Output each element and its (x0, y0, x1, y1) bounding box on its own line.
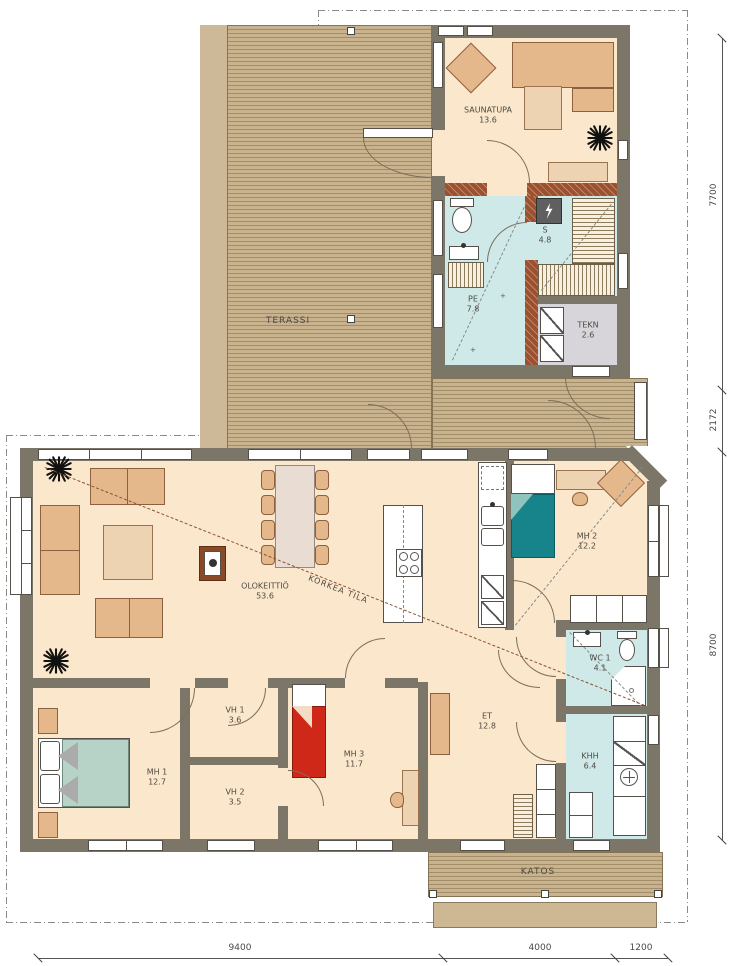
desk-chair (390, 792, 404, 808)
window (438, 26, 464, 36)
sauna-partition-horizontal (445, 183, 617, 196)
sideboard (548, 162, 608, 182)
window (467, 26, 493, 36)
dimension-2172: 2172 (709, 409, 719, 432)
desk-chair (572, 492, 588, 506)
window (433, 42, 443, 88)
door-opening-terrace-1 (367, 449, 410, 460)
floor-drain-icon: + (470, 346, 476, 354)
door-opening-terrace-2 (508, 449, 548, 460)
flue-icon (209, 559, 217, 567)
katos-post (654, 890, 662, 898)
drain-icon (629, 688, 634, 693)
partition-mh3-left (278, 688, 288, 839)
window (433, 274, 443, 328)
bed-pillow (511, 464, 555, 494)
dining-table (275, 465, 315, 568)
terrace-deck-south (432, 378, 648, 450)
partition-vh-divider (190, 757, 278, 765)
dimension-9400: 9400 (229, 943, 252, 953)
sideboard (430, 693, 450, 755)
katos-post (541, 890, 549, 898)
bed-pillow (40, 741, 60, 771)
plot-boundary-left (6, 435, 7, 922)
sink-icon (449, 246, 479, 260)
sauna-tekn-divider (538, 296, 617, 304)
door-opening-terrace-sauna (432, 130, 445, 176)
bed-pillow (292, 684, 326, 708)
room-label-vh2: VH 23.5 (225, 788, 244, 809)
window (421, 449, 468, 460)
floor-plan: + + (0, 0, 730, 966)
wardrobe (570, 595, 647, 623)
sauna-wall-right (617, 25, 630, 378)
window (207, 840, 255, 851)
dining-chair (315, 495, 329, 515)
window (648, 628, 659, 668)
room-label-mh3: MH 311.7 (344, 750, 365, 771)
nightstand (38, 708, 58, 734)
room-label-wc1: WC 14.1 (589, 654, 610, 675)
dining-chair (315, 545, 329, 565)
terrace-deck (200, 25, 432, 450)
terrace-edge-band (200, 25, 228, 450)
door-leaf (363, 128, 433, 138)
room-label-s: S4.8 (539, 226, 552, 247)
dimension-8700: 8700 (709, 634, 719, 657)
window (648, 715, 659, 745)
corner-sofa (512, 42, 614, 88)
toilet-icon (452, 207, 472, 233)
plant-icon (42, 647, 70, 675)
dimension-1200: 1200 (630, 943, 653, 953)
window (648, 505, 659, 577)
window (88, 840, 163, 851)
room-label-khh: KHH6.4 (581, 752, 598, 773)
floor-drain-icon: + (500, 292, 506, 300)
window-sill (659, 505, 669, 577)
door-opening-entrance (460, 840, 505, 851)
desk (402, 770, 419, 826)
door-opening-mh1 (150, 678, 195, 688)
stairs-icon (448, 262, 484, 288)
terrace-screen (634, 382, 647, 440)
corner-sofa-leg (572, 88, 614, 112)
window (433, 200, 443, 256)
door-opening-khh-exterior (573, 840, 610, 851)
toilet-tank-icon (450, 198, 474, 207)
window (318, 840, 393, 851)
room-label-pe: PE7.8 (467, 295, 480, 316)
plot-boundary-top (318, 10, 687, 11)
room-label-olokeittio: OLOKEITTIÖ53.6 (241, 582, 289, 603)
fridge-icon (481, 575, 504, 599)
dining-chair (315, 520, 329, 540)
hvac-unit-icon (540, 307, 564, 334)
window-sill (659, 628, 669, 668)
room-label-katos: KATOS (521, 867, 556, 879)
plot-boundary-right (687, 10, 688, 922)
faucet-icon (461, 243, 466, 248)
sofa (95, 598, 163, 638)
sauna-stove-icon (536, 198, 562, 224)
sofa (40, 505, 80, 595)
door-opening-vh1 (228, 678, 268, 688)
sink-bowl-icon (481, 528, 504, 546)
cooktop-icon (396, 549, 422, 577)
window (618, 140, 628, 160)
door-opening-pe (487, 183, 527, 196)
window (248, 449, 352, 460)
toilet-icon (619, 639, 635, 661)
closet (536, 764, 556, 838)
partition-et-left (418, 682, 428, 839)
dimension-line-bottom (38, 958, 668, 959)
dimension-7700: 7700 (709, 184, 719, 207)
room-label-tekn: TEKN2.6 (577, 321, 598, 342)
door-opening-mh3 (345, 678, 385, 688)
nightstand (38, 812, 58, 838)
dishwasher-icon (481, 466, 504, 490)
door-opening-khh (556, 722, 566, 763)
room-label-et: ET12.8 (478, 712, 496, 733)
dining-chair (261, 520, 275, 540)
window (21, 497, 32, 595)
shoe-rack (513, 794, 533, 838)
coffee-table (524, 86, 562, 130)
freezer-icon (481, 601, 504, 625)
door-opening-vh2 (278, 768, 288, 806)
door-opening-tekn (572, 366, 610, 377)
room-label-terassi: TERASSI (266, 316, 310, 328)
bed-pillow (40, 774, 60, 804)
dining-chair (261, 470, 275, 490)
cabinet (569, 792, 593, 838)
room-label-vh1: VH 13.6 (225, 706, 244, 727)
dining-chair (261, 495, 275, 515)
room-label-mh1: MH 112.7 (147, 768, 168, 789)
washing-machine-icon (620, 768, 638, 786)
partition-wc-khh-divider (566, 706, 647, 714)
katos-post (429, 890, 437, 898)
faucet-icon (490, 502, 495, 507)
faucet-icon (585, 630, 590, 635)
dining-chair (315, 470, 329, 490)
toilet-tank-icon (617, 631, 637, 639)
sink-bowl-icon (481, 506, 504, 526)
terrace-post (347, 27, 355, 35)
dimension-4000: 4000 (529, 943, 552, 953)
window-sill (10, 497, 22, 595)
plant-icon (586, 124, 614, 152)
katos-step (433, 902, 657, 928)
hvac-unit-icon (540, 335, 564, 362)
room-label-saunatupa: SAUNATUPA13.6 (464, 106, 512, 127)
terrace-post (347, 315, 355, 323)
room-label-mh2: MH 212.2 (577, 532, 598, 553)
coffee-table (103, 525, 153, 580)
window (618, 253, 628, 289)
dimension-line-right (722, 38, 723, 840)
